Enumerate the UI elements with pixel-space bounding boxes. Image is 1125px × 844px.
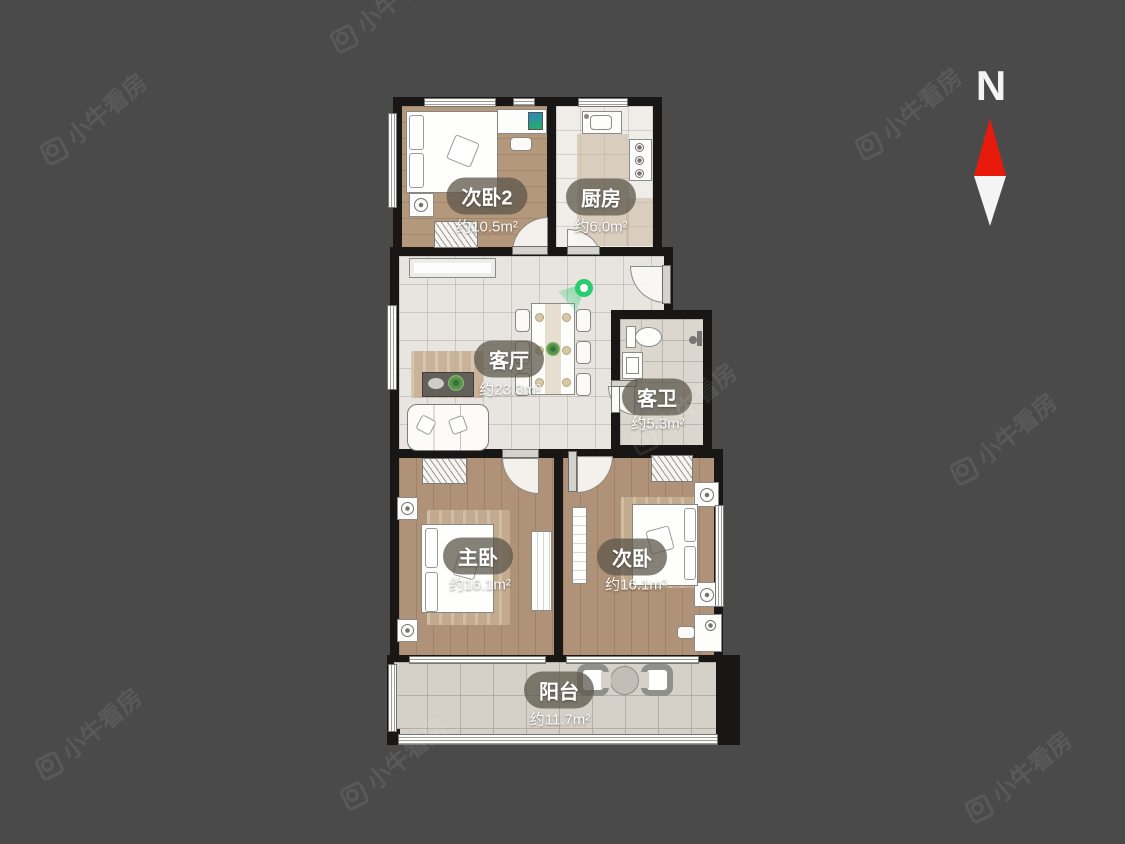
burner-icon <box>635 169 644 178</box>
north-label: N <box>973 62 1009 110</box>
room-area-bedroom: 约16.1m² <box>605 574 667 595</box>
dining-chair-icon <box>576 341 591 364</box>
pillow-icon <box>425 528 438 568</box>
window <box>578 98 628 107</box>
door-leaf <box>502 449 539 458</box>
toilet-icon <box>635 327 662 347</box>
compass-needle-north <box>974 118 1006 176</box>
pillow-icon <box>684 508 696 542</box>
pillow-icon <box>425 572 438 612</box>
shower-head-icon <box>697 331 702 346</box>
balcony-chair-gap <box>601 672 611 688</box>
closet-icon <box>572 507 587 584</box>
desk-lamp-icon <box>705 620 716 631</box>
lamp-icon <box>401 502 414 515</box>
balcony-chair-gap <box>639 672 649 688</box>
door-sill <box>611 383 620 413</box>
watermark: 小牛看房 <box>324 0 444 60</box>
faucet-icon <box>584 114 589 119</box>
balcony-window <box>398 734 718 745</box>
room-label-kitchen: 厨房 <box>566 179 636 216</box>
room-label-living: 客厅 <box>474 341 544 378</box>
shower-head-icon <box>689 336 697 344</box>
tray-icon <box>428 378 444 389</box>
pillow-icon <box>409 153 424 188</box>
window <box>388 113 397 208</box>
room-area-master: 约16.1m² <box>449 574 511 595</box>
door-leaf <box>567 246 600 255</box>
watermark: 小牛看房 <box>959 721 1079 829</box>
sink-basin-icon <box>590 115 612 130</box>
watermark-camera-icon <box>328 23 360 55</box>
plate-icon <box>535 313 544 322</box>
dining-chair-icon <box>576 373 591 396</box>
burner-icon <box>635 143 644 152</box>
room-area-balcony: 约11.7m² <box>530 709 591 730</box>
window <box>513 98 535 106</box>
room-area-bedroom2: 约10.5m² <box>456 216 518 237</box>
chair-icon <box>510 137 532 151</box>
watermark: 小牛看房 <box>34 63 154 171</box>
compass-needle-south <box>974 176 1006 226</box>
room-label-bathroom: 客卫 <box>622 379 692 416</box>
dining-chair-icon <box>576 309 591 332</box>
balcony-slider-window <box>566 656 699 664</box>
balcony-table-icon <box>610 666 639 695</box>
window <box>424 98 496 107</box>
watermark: 小牛看房 <box>944 383 1064 491</box>
room-label-bedroom: 次卧 <box>597 539 667 576</box>
watermark-camera-icon <box>853 130 885 162</box>
watermark-camera-icon <box>338 780 370 812</box>
room-area-bathroom: 约5.3m² <box>631 413 684 434</box>
lamp-icon <box>414 198 428 212</box>
chair-icon <box>677 626 695 639</box>
pillow-icon <box>409 115 424 150</box>
window <box>387 305 397 390</box>
sideboard-icon <box>409 258 496 278</box>
wardrobe-icon <box>651 455 693 482</box>
plant-icon <box>448 375 464 391</box>
door-leaf <box>512 246 548 255</box>
window <box>388 664 397 732</box>
watermark-camera-icon <box>38 135 70 167</box>
burner-icon <box>635 156 644 165</box>
room-label-balcony: 阳台 <box>524 672 594 709</box>
monitor-icon <box>528 112 543 130</box>
room-area-living: 约23.3m² <box>479 379 541 400</box>
entry-door-leaf <box>662 265 671 304</box>
watermark-camera-icon <box>33 750 65 782</box>
watermark: 小牛看房 <box>849 58 969 166</box>
viewpoint-marker-icon <box>575 279 593 297</box>
plate-icon <box>562 378 571 387</box>
lamp-icon <box>700 488 714 502</box>
window <box>715 505 724 607</box>
room-label-master: 主卧 <box>443 538 513 575</box>
watermark-camera-icon <box>963 793 995 825</box>
lamp-icon <box>700 588 714 602</box>
pillow-icon <box>684 546 696 580</box>
lamp-icon <box>401 624 414 637</box>
watermark: 小牛看房 <box>29 678 149 786</box>
floorplan-image: 次卧2 约10.5m² 厨房 约6.0m² 客厅 约23.3m² 客卫 约5.3… <box>0 0 1125 844</box>
watermark-camera-icon <box>948 455 980 487</box>
plate-icon <box>562 346 571 355</box>
room-label-bedroom2: 次卧2 <box>446 178 527 215</box>
sink-basin-icon <box>626 357 639 374</box>
centerpiece-plant-icon <box>546 342 560 356</box>
dining-chair-icon <box>515 309 530 332</box>
balcony-slider-window <box>409 656 546 664</box>
door-leaf <box>568 451 577 492</box>
plate-icon <box>562 313 571 322</box>
wall-block <box>716 655 740 745</box>
room-area-kitchen: 约6.0m² <box>574 216 627 237</box>
wardrobe-icon <box>422 458 467 484</box>
closet-icon <box>531 531 552 611</box>
